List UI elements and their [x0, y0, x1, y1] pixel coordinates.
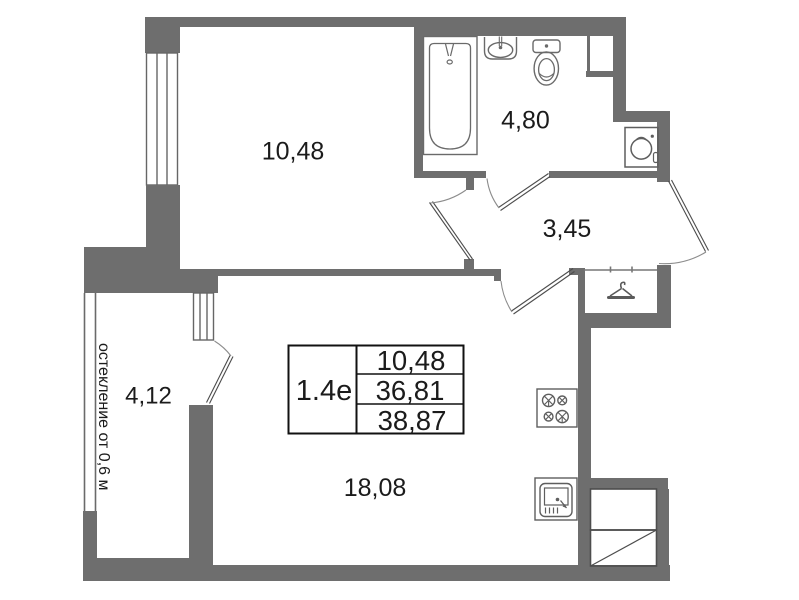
svg-text:остекление от 0,6 м: остекление от 0,6 м: [95, 343, 112, 490]
svg-text:38,87: 38,87: [378, 405, 447, 436]
svg-text:1.4е: 1.4е: [296, 375, 352, 407]
svg-text:36,81: 36,81: [376, 375, 445, 406]
svg-text:10,48: 10,48: [262, 138, 325, 166]
svg-text:10,48: 10,48: [377, 345, 446, 376]
svg-text:3,45: 3,45: [543, 215, 592, 243]
svg-text:4,12: 4,12: [125, 383, 172, 410]
svg-text:18,08: 18,08: [344, 474, 407, 502]
svg-text:4,80: 4,80: [501, 107, 550, 135]
